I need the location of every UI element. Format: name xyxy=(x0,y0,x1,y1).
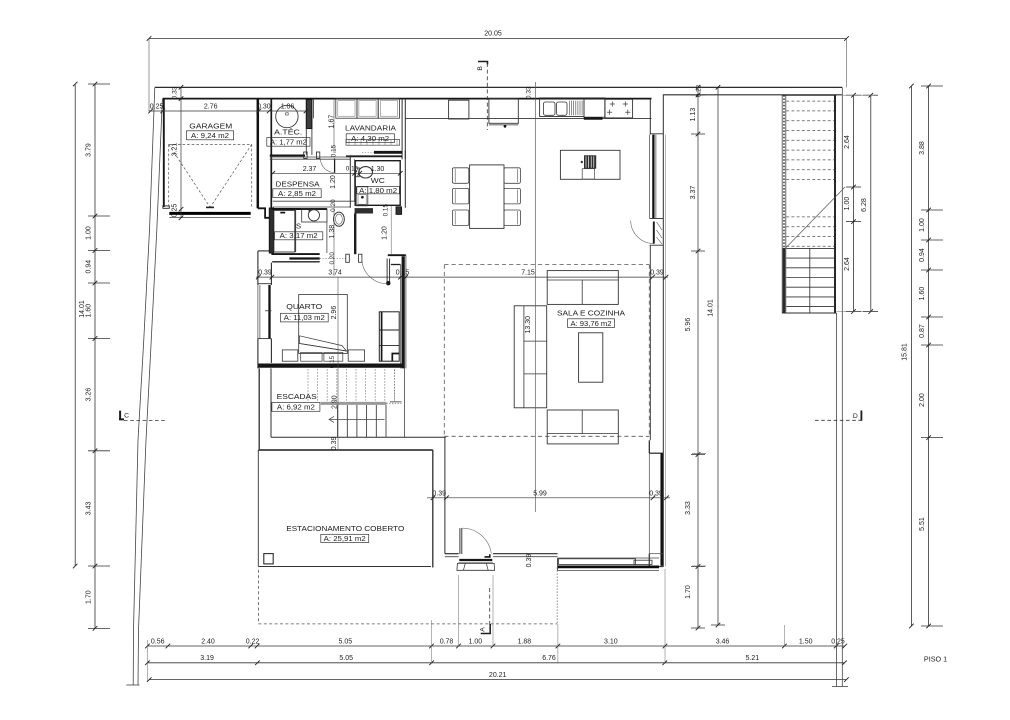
svg-text:A: 93,76 m2: A: 93,76 m2 xyxy=(571,321,612,328)
svg-text:0.15: 0.15 xyxy=(382,204,389,217)
svg-text:5.05: 5.05 xyxy=(338,638,352,645)
svg-text:1.38: 1.38 xyxy=(329,225,336,239)
svg-text:3.26: 3.26 xyxy=(85,388,92,402)
svg-text:ESCADAS: ESCADAS xyxy=(277,392,317,401)
svg-text:13.30: 13.30 xyxy=(525,316,532,334)
svg-text:PISO 1: PISO 1 xyxy=(924,655,947,664)
svg-text:0.56: 0.56 xyxy=(151,638,165,645)
svg-text:S: S xyxy=(296,222,301,231)
svg-text:1.06: 1.06 xyxy=(281,104,295,111)
svg-text:A: 25,91 m2: A: 25,91 m2 xyxy=(324,536,366,543)
svg-text:1.20: 1.20 xyxy=(382,226,389,240)
svg-text:0.39: 0.39 xyxy=(258,270,272,277)
svg-text:0.22: 0.22 xyxy=(696,84,703,97)
svg-text:A: 1,80 m2: A: 1,80 m2 xyxy=(359,188,397,195)
svg-text:3.74: 3.74 xyxy=(328,270,342,277)
svg-text:2.64: 2.64 xyxy=(844,135,851,149)
svg-text:0.78: 0.78 xyxy=(440,638,454,645)
svg-text:0.15: 0.15 xyxy=(331,144,338,157)
svg-text:A: 4,30 m2: A: 4,30 m2 xyxy=(351,136,389,143)
svg-text:A: 9,24 m2: A: 9,24 m2 xyxy=(191,133,229,140)
svg-text:3.43: 3.43 xyxy=(85,501,92,515)
svg-text:1.70: 1.70 xyxy=(85,590,92,604)
svg-text:A: 11,03 m2: A: 11,03 m2 xyxy=(284,315,325,322)
svg-text:0.25: 0.25 xyxy=(831,638,845,645)
svg-text:3.21: 3.21 xyxy=(171,143,178,157)
svg-text:20.05: 20.05 xyxy=(484,31,502,38)
svg-text:A.TÉC.: A.TÉC. xyxy=(274,128,302,137)
svg-text:2.00: 2.00 xyxy=(919,393,926,407)
svg-text:QUARTO: QUARTO xyxy=(286,302,322,311)
svg-text:0.25: 0.25 xyxy=(171,204,178,218)
svg-text:0.15: 0.15 xyxy=(396,270,410,277)
svg-text:0.39: 0.39 xyxy=(432,490,446,497)
svg-text:3.19: 3.19 xyxy=(200,655,214,662)
svg-text:GARAGEM: GARAGEM xyxy=(189,122,232,131)
svg-text:2.76: 2.76 xyxy=(204,104,218,111)
svg-text:B: B xyxy=(477,66,484,71)
svg-text:A: 6,92 m2: A: 6,92 m2 xyxy=(277,405,315,412)
svg-text:1.50: 1.50 xyxy=(799,638,813,645)
svg-text:2.37: 2.37 xyxy=(303,166,317,173)
svg-text:0.22: 0.22 xyxy=(246,638,260,645)
svg-text:C: C xyxy=(124,412,129,419)
svg-text:0.20: 0.20 xyxy=(330,199,337,212)
svg-text:0.39: 0.39 xyxy=(526,554,533,568)
svg-text:0.94: 0.94 xyxy=(919,248,926,262)
svg-text:0.25: 0.25 xyxy=(150,104,164,111)
svg-text:20.21: 20.21 xyxy=(489,672,507,679)
svg-text:2.64: 2.64 xyxy=(844,257,851,271)
svg-text:1.67: 1.67 xyxy=(329,115,336,129)
svg-text:A: 3,17 m2: A: 3,17 m2 xyxy=(280,233,318,240)
svg-text:1.00: 1.00 xyxy=(919,218,926,232)
svg-text:D: D xyxy=(853,413,858,420)
svg-text:0.39: 0.39 xyxy=(331,436,338,450)
svg-text:3.88: 3.88 xyxy=(919,141,926,155)
svg-text:A: 2,85 m2: A: 2,85 m2 xyxy=(278,191,316,198)
svg-text:15.81: 15.81 xyxy=(902,343,909,361)
svg-text:A: 1,77 m2: A: 1,77 m2 xyxy=(270,140,307,147)
svg-text:A: A xyxy=(480,627,487,632)
svg-text:ESTACIONAMENTO COBERTO: ESTACIONAMENTO COBERTO xyxy=(286,524,404,533)
svg-text:5.99: 5.99 xyxy=(533,490,547,497)
svg-text:0.15: 0.15 xyxy=(329,355,336,368)
svg-text:0.94: 0.94 xyxy=(85,260,92,274)
svg-text:1.00: 1.00 xyxy=(469,638,483,645)
svg-text:1.13: 1.13 xyxy=(690,108,697,122)
svg-text:5.51: 5.51 xyxy=(919,517,926,531)
svg-text:1.88: 1.88 xyxy=(518,638,532,645)
svg-text:1.30: 1.30 xyxy=(371,166,385,173)
svg-text:1.60: 1.60 xyxy=(919,287,926,301)
svg-text:1.70: 1.70 xyxy=(685,585,692,599)
svg-text:6.76: 6.76 xyxy=(542,655,556,662)
svg-text:0.39: 0.39 xyxy=(650,270,664,277)
svg-text:DESPENSA: DESPENSA xyxy=(276,179,321,188)
svg-text:1.60: 1.60 xyxy=(85,304,92,318)
svg-text:1.00: 1.00 xyxy=(844,197,851,211)
svg-text:0.39: 0.39 xyxy=(649,490,663,497)
svg-text:SALA E COZINHA: SALA E COZINHA xyxy=(557,308,626,317)
svg-text:3.10: 3.10 xyxy=(604,638,618,645)
svg-text:14.01: 14.01 xyxy=(708,299,715,317)
svg-text:0.15: 0.15 xyxy=(346,165,359,172)
svg-text:3.46: 3.46 xyxy=(716,638,730,645)
svg-text:2.90: 2.90 xyxy=(332,395,339,409)
svg-text:0.33: 0.33 xyxy=(526,86,533,99)
svg-text:0.87: 0.87 xyxy=(919,324,926,338)
svg-text:2.96: 2.96 xyxy=(331,306,338,320)
svg-text:5.21: 5.21 xyxy=(746,655,760,662)
svg-text:3.33: 3.33 xyxy=(685,501,692,515)
svg-text:2.40: 2.40 xyxy=(201,638,215,645)
svg-text:0.20: 0.20 xyxy=(329,252,336,265)
svg-text:LAVANDARIA: LAVANDARIA xyxy=(345,124,397,133)
svg-text:6.28: 6.28 xyxy=(861,198,868,212)
svg-text:7.15: 7.15 xyxy=(521,270,535,277)
svg-text:3.79: 3.79 xyxy=(85,143,92,157)
svg-text:5.96: 5.96 xyxy=(685,318,692,332)
svg-text:0.33: 0.33 xyxy=(171,86,178,99)
svg-text:3.37: 3.37 xyxy=(690,186,697,200)
svg-text:5.05: 5.05 xyxy=(339,655,353,662)
svg-text:0.30: 0.30 xyxy=(257,104,271,111)
svg-text:WC: WC xyxy=(371,176,386,185)
svg-text:1.00: 1.00 xyxy=(85,226,92,240)
svg-text:1.20: 1.20 xyxy=(330,175,337,189)
